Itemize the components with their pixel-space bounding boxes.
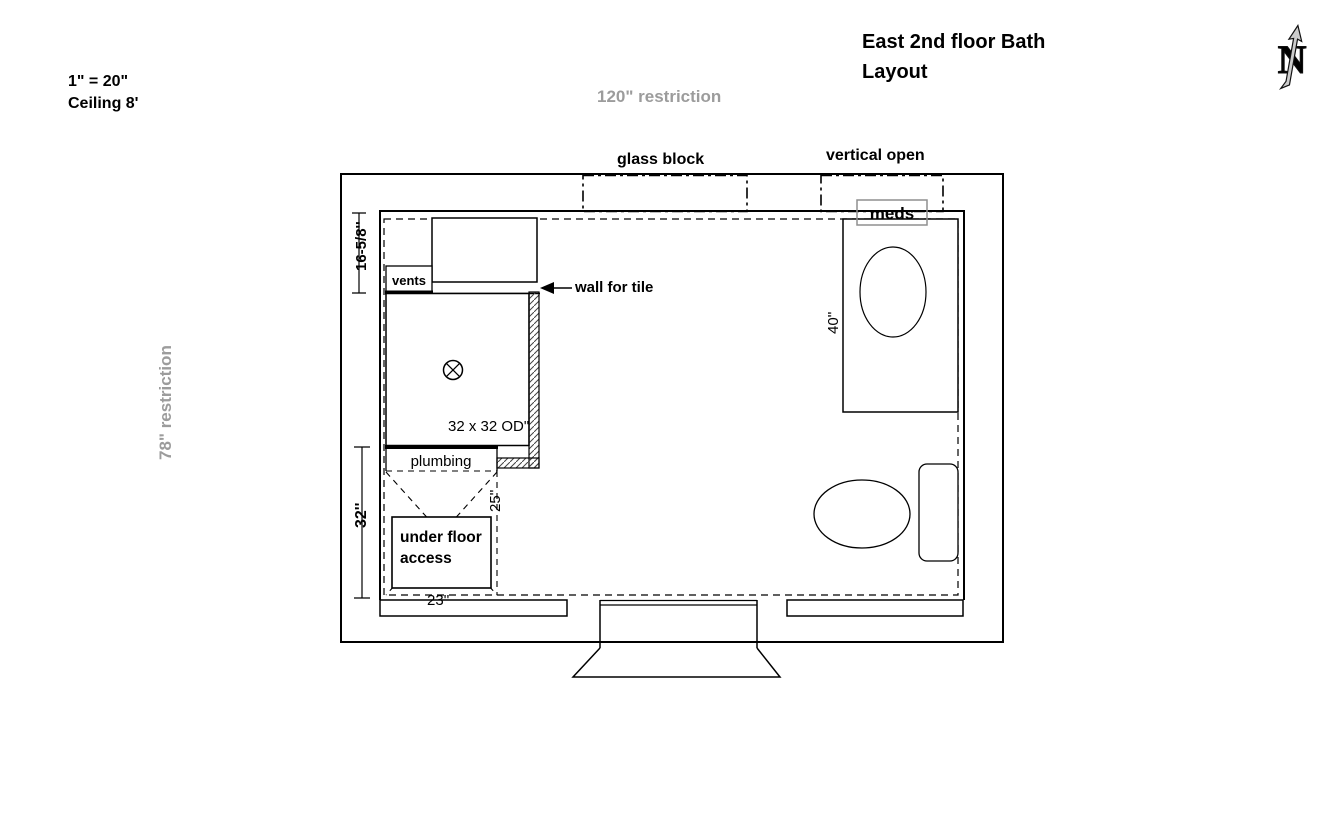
dim-25-label: 25'' — [487, 489, 504, 512]
vertical-open-label: vertical open — [826, 147, 925, 164]
dim-23-label: 23'' — [427, 592, 450, 609]
wall-for-tile-label: wall for tile — [574, 279, 653, 296]
cabinet — [432, 218, 537, 282]
restriction-top-label: 120" restriction — [597, 87, 721, 106]
dim-32-label: 32'' — [353, 503, 370, 528]
bottom-wall-right-segment — [787, 600, 963, 616]
glass-block-label: glass block — [617, 151, 704, 168]
scale-note: 1" = 20" — [68, 73, 128, 90]
dim-16-5-8-label: 16-5/8'' — [353, 221, 370, 271]
toilet-bowl — [814, 480, 910, 548]
floor-plan-svg: N East 2nd floor Bath Layout 1" = 20" Ce… — [0, 0, 1344, 816]
bottom-wall-left-segment — [380, 600, 567, 616]
shower-size-label: 32 x 32 OD" — [448, 418, 529, 435]
meds-label: meds — [870, 204, 914, 223]
under-floor-label-line2: access — [400, 550, 452, 567]
page-title-line2: Layout — [862, 61, 928, 83]
restriction-left-label: 78" restriction — [156, 345, 175, 460]
toilet-tank — [919, 464, 958, 561]
entry-landing — [573, 648, 780, 677]
under-floor-label-line1: under floor — [400, 529, 482, 546]
tile-wall-vertical — [529, 292, 539, 468]
tile-wall-horizontal — [497, 458, 539, 468]
plumbing-label: plumbing — [411, 453, 472, 470]
sink — [860, 247, 926, 337]
toilet — [814, 464, 958, 561]
page-title-line1: East 2nd floor Bath — [862, 31, 1045, 53]
glass-block-opening — [583, 176, 747, 212]
floor-plan-page: N East 2nd floor Bath Layout 1" = 20" Ce… — [0, 0, 1344, 816]
doorway-threshold — [600, 601, 757, 606]
drain-symbol — [444, 361, 463, 380]
vents-label: vents — [392, 273, 426, 288]
wall-for-tile-arrow — [540, 282, 572, 294]
ceiling-note: Ceiling 8' — [68, 95, 138, 112]
north-arrow: N — [1278, 24, 1307, 90]
dim-40-label: 40'' — [825, 311, 842, 334]
doorway-jambs — [600, 600, 757, 648]
